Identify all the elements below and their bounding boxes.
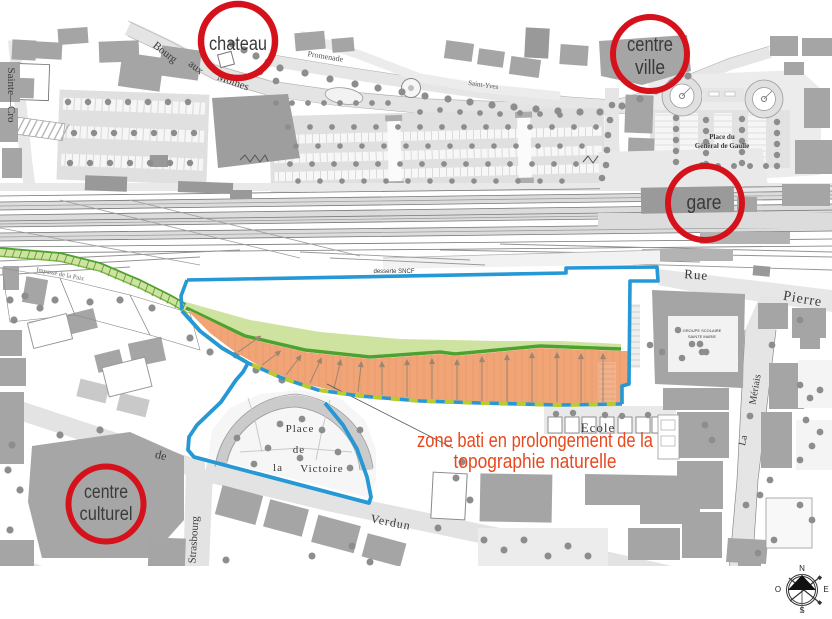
svg-text:ville: ville <box>635 57 665 79</box>
svg-text:zone bati en prolongement de l: zone bati en prolongement de la <box>417 430 654 452</box>
svg-text:S: S <box>799 606 804 614</box>
svg-text:chateau: chateau <box>209 34 267 55</box>
svg-text:N: N <box>799 564 805 573</box>
svg-text:Victoire: Victoire <box>300 463 343 475</box>
svg-text:centre: centre <box>84 482 128 503</box>
svg-text:O: O <box>775 585 781 594</box>
svg-text:Sainte—Cro: Sainte—Cro <box>5 68 17 123</box>
svg-text:Place: Place <box>286 423 315 435</box>
svg-text:GROUPE SCOLAIRE: GROUPE SCOLAIRE <box>683 328 722 333</box>
svg-text:Général de Gaulle: Général de Gaulle <box>695 142 749 150</box>
svg-text:culturel: culturel <box>80 504 133 525</box>
svg-text:gare: gare <box>687 192 722 214</box>
svg-text:E: E <box>823 585 828 594</box>
svg-text:de: de <box>293 444 305 456</box>
svg-text:desserte SNCF: desserte SNCF <box>373 269 414 275</box>
svg-text:SAINTE MARIE: SAINTE MARIE <box>688 334 717 339</box>
svg-text:Place du: Place du <box>709 133 735 141</box>
svg-text:Rue: Rue <box>684 266 709 283</box>
svg-text:la: la <box>273 462 283 474</box>
svg-text:centre: centre <box>627 34 673 56</box>
svg-text:topographie naturelle: topographie naturelle <box>454 451 617 473</box>
